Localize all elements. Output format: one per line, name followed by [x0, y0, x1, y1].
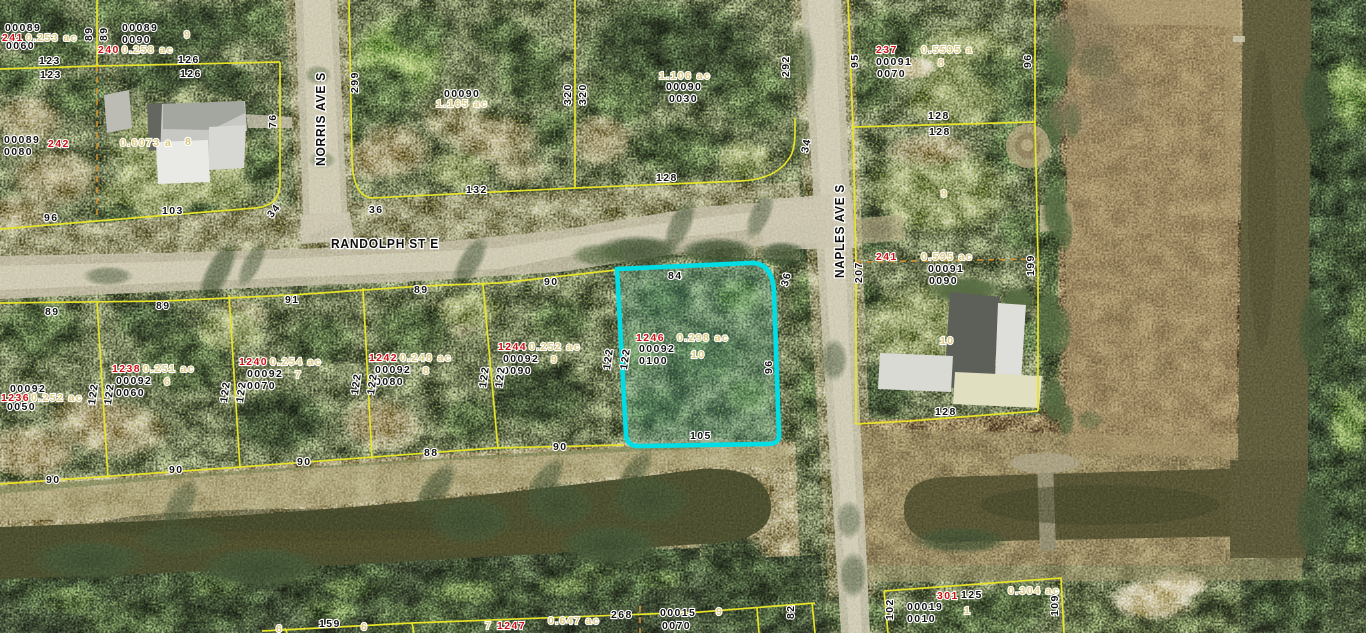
svg-text:00091: 00091 [928, 263, 964, 275]
svg-text:128: 128 [935, 406, 957, 418]
svg-text:109: 109 [1049, 594, 1061, 616]
svg-text:0.5595 a: 0.5595 a [921, 44, 973, 56]
svg-text:0050: 0050 [7, 401, 36, 413]
svg-text:10: 10 [691, 349, 705, 361]
svg-text:0010: 0010 [907, 613, 936, 625]
svg-text:00090: 00090 [666, 81, 702, 93]
svg-text:0070: 0070 [662, 620, 691, 632]
svg-text:126: 126 [178, 54, 200, 66]
svg-text:0.6073 a: 0.6073 a [120, 137, 172, 149]
svg-text:0080: 0080 [4, 146, 33, 158]
svg-text:0.647 ac: 0.647 ac [548, 615, 600, 627]
svg-text:207: 207 [853, 261, 865, 283]
svg-text:159: 159 [319, 618, 341, 630]
svg-text:6: 6 [276, 623, 283, 633]
svg-text:89: 89 [156, 300, 170, 312]
svg-text:132: 132 [466, 184, 488, 196]
svg-text:125: 125 [961, 589, 983, 601]
svg-text:00091: 00091 [876, 56, 912, 68]
svg-text:95: 95 [849, 54, 861, 68]
svg-text:1247: 1247 [497, 620, 526, 632]
svg-text:12420.248 ac: 12420.248 ac [369, 352, 452, 364]
svg-text:96: 96 [1022, 54, 1034, 68]
svg-text:89: 89 [45, 306, 59, 318]
svg-text:89: 89 [83, 27, 95, 41]
svg-text:90: 90 [297, 456, 311, 468]
svg-text:128: 128 [928, 110, 950, 122]
svg-text:00019: 00019 [907, 601, 943, 613]
svg-text:0100: 0100 [639, 355, 668, 367]
svg-text:00092: 00092 [116, 375, 152, 387]
svg-text:126: 126 [180, 68, 202, 80]
svg-text:12380.251 ac: 12380.251 ac [112, 363, 195, 375]
svg-text:91: 91 [285, 294, 299, 306]
svg-text:1.165 ac: 1.165 ac [436, 98, 488, 110]
svg-text:1: 1 [964, 605, 971, 617]
svg-text:82: 82 [785, 605, 797, 619]
svg-text:0060: 0060 [116, 387, 145, 399]
svg-text:76: 76 [267, 114, 279, 128]
svg-text:123: 123 [39, 55, 61, 67]
svg-text:10: 10 [940, 335, 954, 347]
svg-text:12400.254 ac: 12400.254 ac [239, 356, 322, 368]
svg-text:128: 128 [656, 172, 678, 184]
svg-text:0030: 0030 [669, 93, 698, 105]
svg-text:6: 6 [361, 621, 368, 633]
svg-text:00089: 00089 [122, 22, 158, 34]
svg-text:105: 105 [690, 430, 712, 442]
svg-text:NAPLES AVE S: NAPLES AVE S [833, 184, 847, 278]
svg-text:0060: 0060 [6, 40, 35, 52]
svg-text:0.298 ac: 0.298 ac [677, 332, 729, 344]
svg-text:0070: 0070 [877, 68, 906, 80]
svg-text:6: 6 [164, 376, 171, 388]
svg-text:90: 90 [169, 464, 183, 476]
svg-text:2400.258 ac: 2400.258 ac [98, 44, 174, 56]
svg-text:299: 299 [349, 71, 361, 93]
svg-text:8: 8 [938, 57, 945, 69]
svg-text:0070: 0070 [247, 380, 276, 392]
svg-text:9: 9 [941, 188, 948, 200]
svg-text:320: 320 [577, 83, 589, 105]
svg-text:00015: 00015 [660, 607, 696, 619]
svg-text:9: 9 [551, 354, 558, 366]
svg-text:12440.252 ac: 12440.252 ac [498, 341, 581, 353]
svg-text:0.595 ac: 0.595 ac [921, 251, 973, 263]
svg-text:96: 96 [44, 212, 58, 224]
svg-text:123: 123 [40, 69, 62, 81]
svg-text:90: 90 [553, 441, 567, 453]
svg-text:9: 9 [716, 606, 723, 618]
svg-text:00092: 00092 [247, 368, 283, 380]
svg-text:88: 88 [424, 447, 438, 459]
svg-text:96: 96 [763, 360, 775, 374]
svg-text:90: 90 [46, 474, 60, 486]
svg-text:NORRIS AVE S: NORRIS AVE S [314, 72, 328, 166]
svg-text:89: 89 [414, 284, 428, 296]
svg-text:RANDOLPH ST E: RANDOLPH ST E [331, 237, 439, 251]
svg-text:128: 128 [929, 126, 951, 138]
svg-text:7: 7 [295, 369, 302, 381]
svg-text:199: 199 [1025, 254, 1037, 276]
svg-text:9: 9 [184, 29, 191, 41]
svg-text:7: 7 [485, 620, 492, 632]
svg-text:00092: 00092 [503, 353, 539, 365]
svg-text:0090: 0090 [929, 275, 958, 287]
svg-text:103: 103 [162, 205, 184, 217]
svg-text:8: 8 [423, 365, 430, 377]
svg-text:292: 292 [780, 55, 792, 77]
svg-text:320: 320 [562, 83, 574, 105]
svg-text:241: 241 [876, 251, 898, 263]
svg-text:84: 84 [668, 270, 682, 282]
svg-text:242: 242 [48, 138, 70, 150]
svg-text:102: 102 [884, 598, 896, 620]
svg-text:36: 36 [369, 204, 383, 216]
svg-text:8: 8 [185, 136, 192, 148]
svg-text:268: 268 [611, 609, 633, 621]
svg-text:00092: 00092 [375, 364, 411, 376]
svg-text:90: 90 [544, 276, 558, 288]
svg-text:237: 237 [876, 44, 898, 56]
svg-text:00092: 00092 [639, 343, 675, 355]
svg-text:89: 89 [98, 27, 110, 41]
svg-text:00089: 00089 [4, 134, 40, 146]
